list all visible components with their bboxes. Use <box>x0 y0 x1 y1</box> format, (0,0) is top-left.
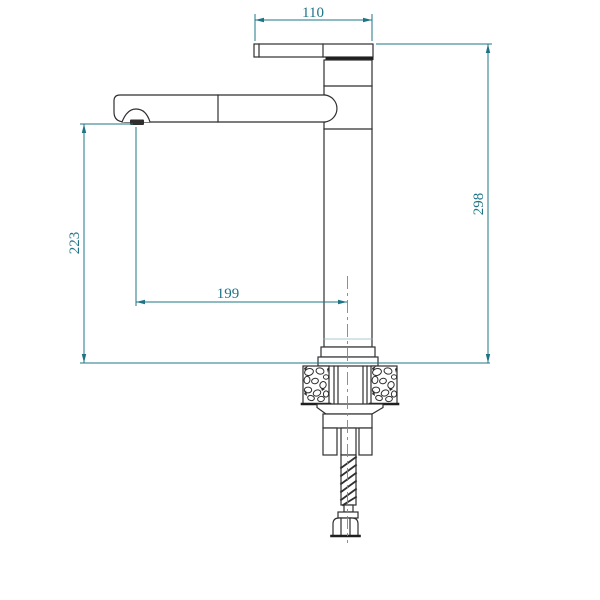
dimension-label-298: 298 <box>471 193 487 216</box>
dimension-label-199: 199 <box>217 286 240 302</box>
arrowhead-bottom <box>486 354 490 363</box>
drawing-page: 110 298 223 199 <box>0 0 600 600</box>
countertop-left-block <box>302 366 330 404</box>
nut-prong-center <box>341 428 356 455</box>
hose-connector-nut <box>332 505 360 536</box>
arrowhead-left <box>136 300 145 304</box>
countertop-cross-section <box>302 366 398 404</box>
arrowhead-bottom <box>82 354 86 363</box>
dimension-110: 110 <box>255 5 372 41</box>
braided-hose <box>341 455 356 505</box>
hose-collar <box>338 512 358 518</box>
technical-drawing-canvas: 110 298 223 199 <box>0 0 600 600</box>
nut-prong-right <box>359 428 372 455</box>
dimension-223: 223 <box>67 124 133 363</box>
dimension-label-223: 223 <box>67 232 83 255</box>
dimension-199: 199 <box>136 127 347 306</box>
dimension-298: 298 <box>376 44 492 363</box>
arrowhead-left <box>255 18 264 22</box>
arrowhead-top <box>486 44 490 53</box>
arrowhead-top <box>82 124 86 133</box>
arrowhead-right <box>363 18 372 22</box>
countertop-right-block <box>370 366 398 404</box>
dimension-label-110: 110 <box>302 5 324 21</box>
hex-nut <box>333 518 358 536</box>
mounting-shank <box>334 366 367 404</box>
faucet-handle <box>254 44 373 59</box>
nut-prong-left <box>323 428 337 455</box>
hose-tube <box>344 505 353 512</box>
mounting-nut <box>317 404 383 455</box>
mounting-washer <box>317 404 383 414</box>
